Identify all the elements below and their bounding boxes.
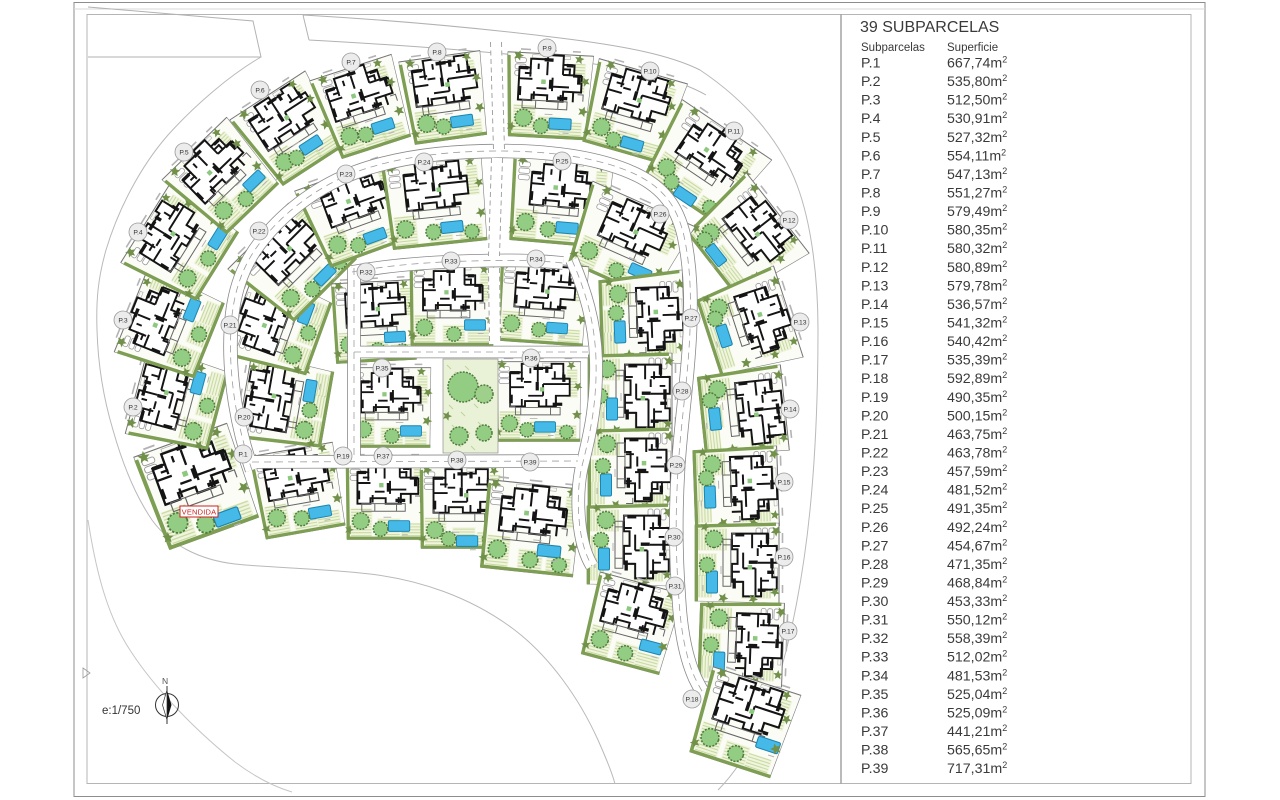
svg-text:P.21: P.21 bbox=[861, 427, 888, 443]
svg-text:471,35m2: 471,35m2 bbox=[947, 556, 1007, 573]
svg-text:P.36: P.36 bbox=[524, 355, 537, 362]
svg-text:P.7: P.7 bbox=[346, 59, 356, 66]
svg-text:P.11: P.11 bbox=[861, 241, 887, 257]
svg-text:580,35m2: 580,35m2 bbox=[947, 222, 1007, 239]
svg-text:P.33: P.33 bbox=[861, 650, 888, 666]
svg-text:P.24: P.24 bbox=[417, 159, 430, 166]
svg-text:Superficie: Superficie bbox=[947, 42, 998, 54]
svg-text:P.5: P.5 bbox=[179, 149, 189, 156]
svg-text:P.19: P.19 bbox=[861, 390, 888, 406]
svg-text:457,59m2: 457,59m2 bbox=[947, 463, 1007, 480]
svg-text:P.15: P.15 bbox=[861, 316, 888, 332]
svg-text:P.20: P.20 bbox=[861, 408, 888, 424]
svg-text:P.4: P.4 bbox=[133, 229, 143, 236]
svg-text:P.28: P.28 bbox=[861, 557, 888, 573]
svg-text:512,02m2: 512,02m2 bbox=[947, 649, 1007, 666]
svg-text:P.37: P.37 bbox=[376, 453, 389, 460]
svg-text:P.9: P.9 bbox=[542, 45, 552, 52]
svg-text:P.12: P.12 bbox=[782, 217, 795, 224]
svg-text:Subparcelas: Subparcelas bbox=[861, 42, 925, 54]
svg-text:492,24m2: 492,24m2 bbox=[947, 519, 1007, 536]
svg-text:P.27: P.27 bbox=[861, 538, 888, 554]
svg-text:P.35: P.35 bbox=[861, 687, 888, 703]
svg-text:P.3: P.3 bbox=[118, 317, 128, 324]
svg-text:P.31: P.31 bbox=[668, 583, 681, 590]
svg-text:P.14: P.14 bbox=[783, 406, 796, 413]
svg-text:P.39: P.39 bbox=[523, 459, 536, 466]
svg-text:P.33: P.33 bbox=[444, 258, 457, 265]
svg-text:e:1/750: e:1/750 bbox=[102, 705, 140, 717]
svg-text:454,67m2: 454,67m2 bbox=[947, 537, 1007, 554]
svg-text:P.16: P.16 bbox=[777, 554, 790, 561]
svg-text:P.4: P.4 bbox=[861, 111, 881, 127]
svg-text:535,39m2: 535,39m2 bbox=[947, 352, 1007, 369]
svg-text:P.13: P.13 bbox=[861, 278, 888, 294]
svg-text:P.39: P.39 bbox=[861, 761, 888, 777]
svg-text:P.22: P.22 bbox=[861, 446, 888, 462]
svg-text:P.18: P.18 bbox=[861, 371, 888, 387]
svg-text:P.20: P.20 bbox=[237, 414, 250, 421]
svg-text:P.32: P.32 bbox=[359, 269, 372, 276]
svg-text:550,12m2: 550,12m2 bbox=[947, 612, 1007, 629]
svg-text:P.34: P.34 bbox=[529, 256, 542, 263]
svg-text:525,04m2: 525,04m2 bbox=[947, 686, 1007, 703]
svg-text:558,39m2: 558,39m2 bbox=[947, 630, 1007, 647]
svg-text:P.31: P.31 bbox=[861, 613, 888, 629]
svg-text:530,91m2: 530,91m2 bbox=[947, 110, 1007, 127]
svg-text:P.28: P.28 bbox=[675, 388, 688, 395]
svg-text:535,80m2: 535,80m2 bbox=[947, 73, 1007, 90]
svg-text:P.5: P.5 bbox=[861, 130, 881, 146]
svg-text:P.32: P.32 bbox=[861, 631, 888, 647]
svg-text:541,32m2: 541,32m2 bbox=[947, 315, 1007, 332]
svg-text:551,27m2: 551,27m2 bbox=[947, 185, 1007, 202]
svg-text:667,74m2: 667,74m2 bbox=[947, 55, 1007, 72]
svg-text:527,32m2: 527,32m2 bbox=[947, 129, 1007, 146]
svg-text:P.6: P.6 bbox=[861, 148, 881, 164]
svg-text:P.13: P.13 bbox=[793, 319, 806, 326]
svg-text:463,78m2: 463,78m2 bbox=[947, 445, 1007, 462]
svg-text:579,49m2: 579,49m2 bbox=[947, 203, 1007, 220]
svg-text:P.12: P.12 bbox=[861, 260, 888, 276]
svg-text:P.27: P.27 bbox=[684, 315, 697, 322]
svg-text:P.36: P.36 bbox=[861, 706, 888, 722]
svg-text:P.30: P.30 bbox=[667, 534, 680, 541]
svg-text:P.35: P.35 bbox=[375, 365, 388, 372]
svg-text:481,53m2: 481,53m2 bbox=[947, 667, 1007, 684]
svg-text:P.1: P.1 bbox=[861, 56, 881, 72]
svg-text:592,89m2: 592,89m2 bbox=[947, 370, 1007, 387]
svg-text:565,65m2: 565,65m2 bbox=[947, 742, 1007, 759]
svg-text:580,32m2: 580,32m2 bbox=[947, 240, 1007, 257]
svg-text:P.30: P.30 bbox=[861, 594, 888, 610]
svg-text:P.24: P.24 bbox=[861, 483, 888, 499]
svg-text:P.8: P.8 bbox=[861, 186, 881, 202]
svg-text:P.26: P.26 bbox=[861, 520, 888, 536]
svg-text:P.11: P.11 bbox=[728, 128, 741, 135]
svg-text:P.26: P.26 bbox=[653, 211, 666, 218]
svg-text:P.23: P.23 bbox=[339, 171, 352, 178]
svg-text:P.2: P.2 bbox=[128, 404, 138, 411]
svg-text:P.38: P.38 bbox=[861, 743, 888, 759]
svg-text:P.29: P.29 bbox=[669, 462, 682, 469]
svg-text:525,09m2: 525,09m2 bbox=[947, 705, 1007, 722]
svg-text:P.29: P.29 bbox=[861, 576, 888, 592]
svg-text:579,78m2: 579,78m2 bbox=[947, 277, 1007, 294]
svg-text:536,57m2: 536,57m2 bbox=[947, 296, 1007, 313]
svg-text:P.25: P.25 bbox=[555, 158, 568, 165]
svg-text:P.8: P.8 bbox=[432, 49, 442, 56]
svg-text:P.37: P.37 bbox=[861, 724, 888, 740]
svg-text:P.9: P.9 bbox=[861, 204, 881, 220]
svg-text:P.6: P.6 bbox=[255, 87, 265, 94]
svg-text:VENDIDA: VENDIDA bbox=[182, 508, 217, 517]
svg-text:P.25: P.25 bbox=[861, 501, 888, 517]
svg-text:39 SUBPARCELAS: 39 SUBPARCELAS bbox=[860, 19, 999, 36]
svg-text:463,75m2: 463,75m2 bbox=[947, 426, 1007, 443]
svg-text:P.23: P.23 bbox=[861, 464, 888, 480]
svg-text:P.3: P.3 bbox=[861, 93, 881, 109]
svg-text:P.17: P.17 bbox=[781, 628, 794, 635]
svg-text:P.10: P.10 bbox=[643, 68, 656, 75]
svg-text:P.14: P.14 bbox=[861, 297, 888, 313]
svg-text:P.2: P.2 bbox=[861, 74, 881, 90]
svg-text:512,50m2: 512,50m2 bbox=[947, 92, 1007, 109]
svg-text:554,11m2: 554,11m2 bbox=[947, 147, 1006, 164]
svg-text:500,15m2: 500,15m2 bbox=[947, 407, 1007, 424]
svg-text:P.1: P.1 bbox=[238, 451, 248, 458]
svg-text:P.22: P.22 bbox=[252, 228, 265, 235]
svg-text:481,52m2: 481,52m2 bbox=[947, 482, 1007, 499]
svg-text:P.19: P.19 bbox=[336, 453, 349, 460]
svg-text:P.15: P.15 bbox=[777, 479, 790, 486]
svg-text:468,84m2: 468,84m2 bbox=[947, 575, 1007, 592]
svg-text:580,89m2: 580,89m2 bbox=[947, 259, 1007, 276]
svg-text:P.10: P.10 bbox=[861, 223, 888, 239]
svg-text:P.38: P.38 bbox=[450, 457, 463, 464]
svg-text:N: N bbox=[162, 676, 168, 686]
svg-text:P.34: P.34 bbox=[861, 668, 888, 684]
svg-text:491,35m2: 491,35m2 bbox=[947, 500, 1007, 517]
svg-text:490,35m2: 490,35m2 bbox=[947, 389, 1007, 406]
svg-text:P.17: P.17 bbox=[861, 353, 888, 369]
svg-text:540,42m2: 540,42m2 bbox=[947, 333, 1007, 350]
svg-text:P.21: P.21 bbox=[223, 322, 236, 329]
svg-text:717,31m2: 717,31m2 bbox=[947, 760, 1007, 777]
svg-text:453,33m2: 453,33m2 bbox=[947, 593, 1007, 610]
svg-text:441,21m2: 441,21m2 bbox=[947, 723, 1007, 740]
svg-text:P.7: P.7 bbox=[861, 167, 881, 183]
svg-text:P.16: P.16 bbox=[861, 334, 888, 350]
svg-text:547,13m2: 547,13m2 bbox=[947, 166, 1007, 183]
svg-text:P.18: P.18 bbox=[685, 696, 698, 703]
